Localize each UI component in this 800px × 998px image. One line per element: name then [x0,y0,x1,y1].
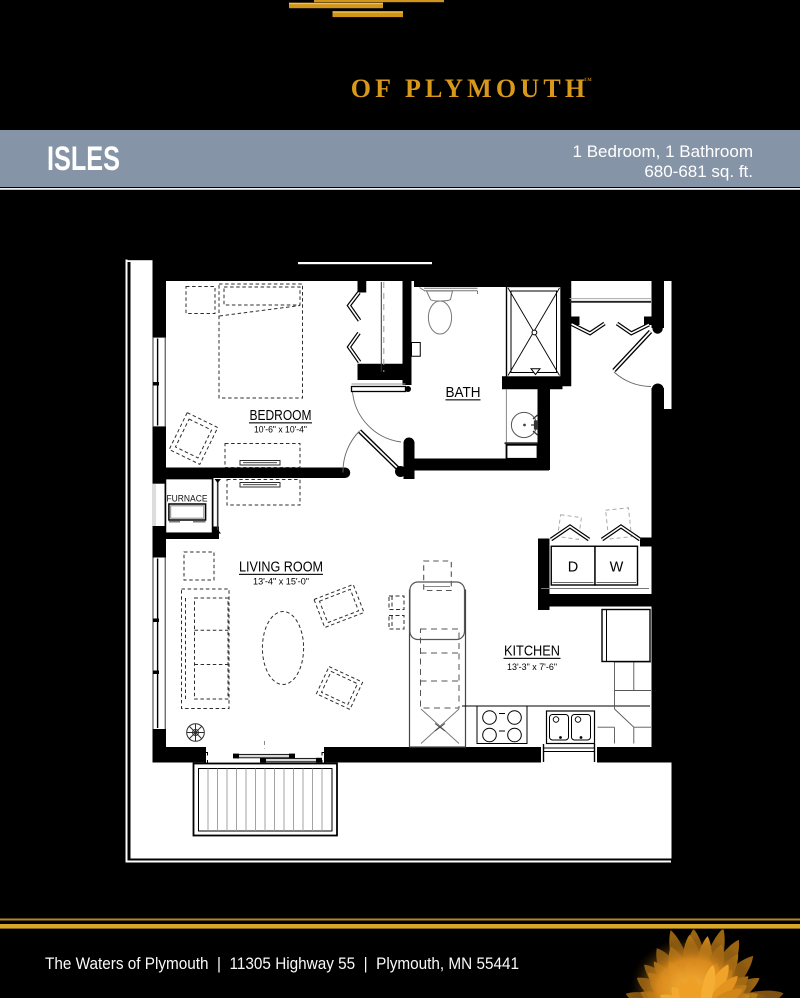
svg-text:680-681 sq. ft.: 680-681 sq. ft. [644,162,753,181]
svg-text:™: ™ [584,76,592,85]
svg-text:LIVING ROOM: LIVING ROOM [239,560,323,576]
svg-text:13'-3" x 7'-6": 13'-3" x 7'-6" [507,662,557,673]
svg-text:KITCHEN: KITCHEN [504,644,560,660]
svg-text:10'-6" x 10'-4": 10'-6" x 10'-4" [254,425,307,436]
svg-text:D: D [568,560,578,576]
svg-text:13'-4" x 15'-0": 13'-4" x 15'-0" [253,577,309,588]
svg-text:1 Bedroom, 1 Bathroom: 1 Bedroom, 1 Bathroom [573,142,753,161]
svg-text:The Waters of Plymouth | 113: The Waters of Plymouth | 11305 Highway 5… [45,955,519,973]
svg-text:FURNACE: FURNACE [167,494,208,505]
svg-text:W: W [610,560,624,576]
svg-text:BATH: BATH [446,385,481,401]
svg-text:ISLES: ISLES [47,140,120,178]
svg-text:OF PLYMOUTH: OF PLYMOUTH [351,74,590,103]
svg-text:BEDROOM: BEDROOM [250,408,312,424]
